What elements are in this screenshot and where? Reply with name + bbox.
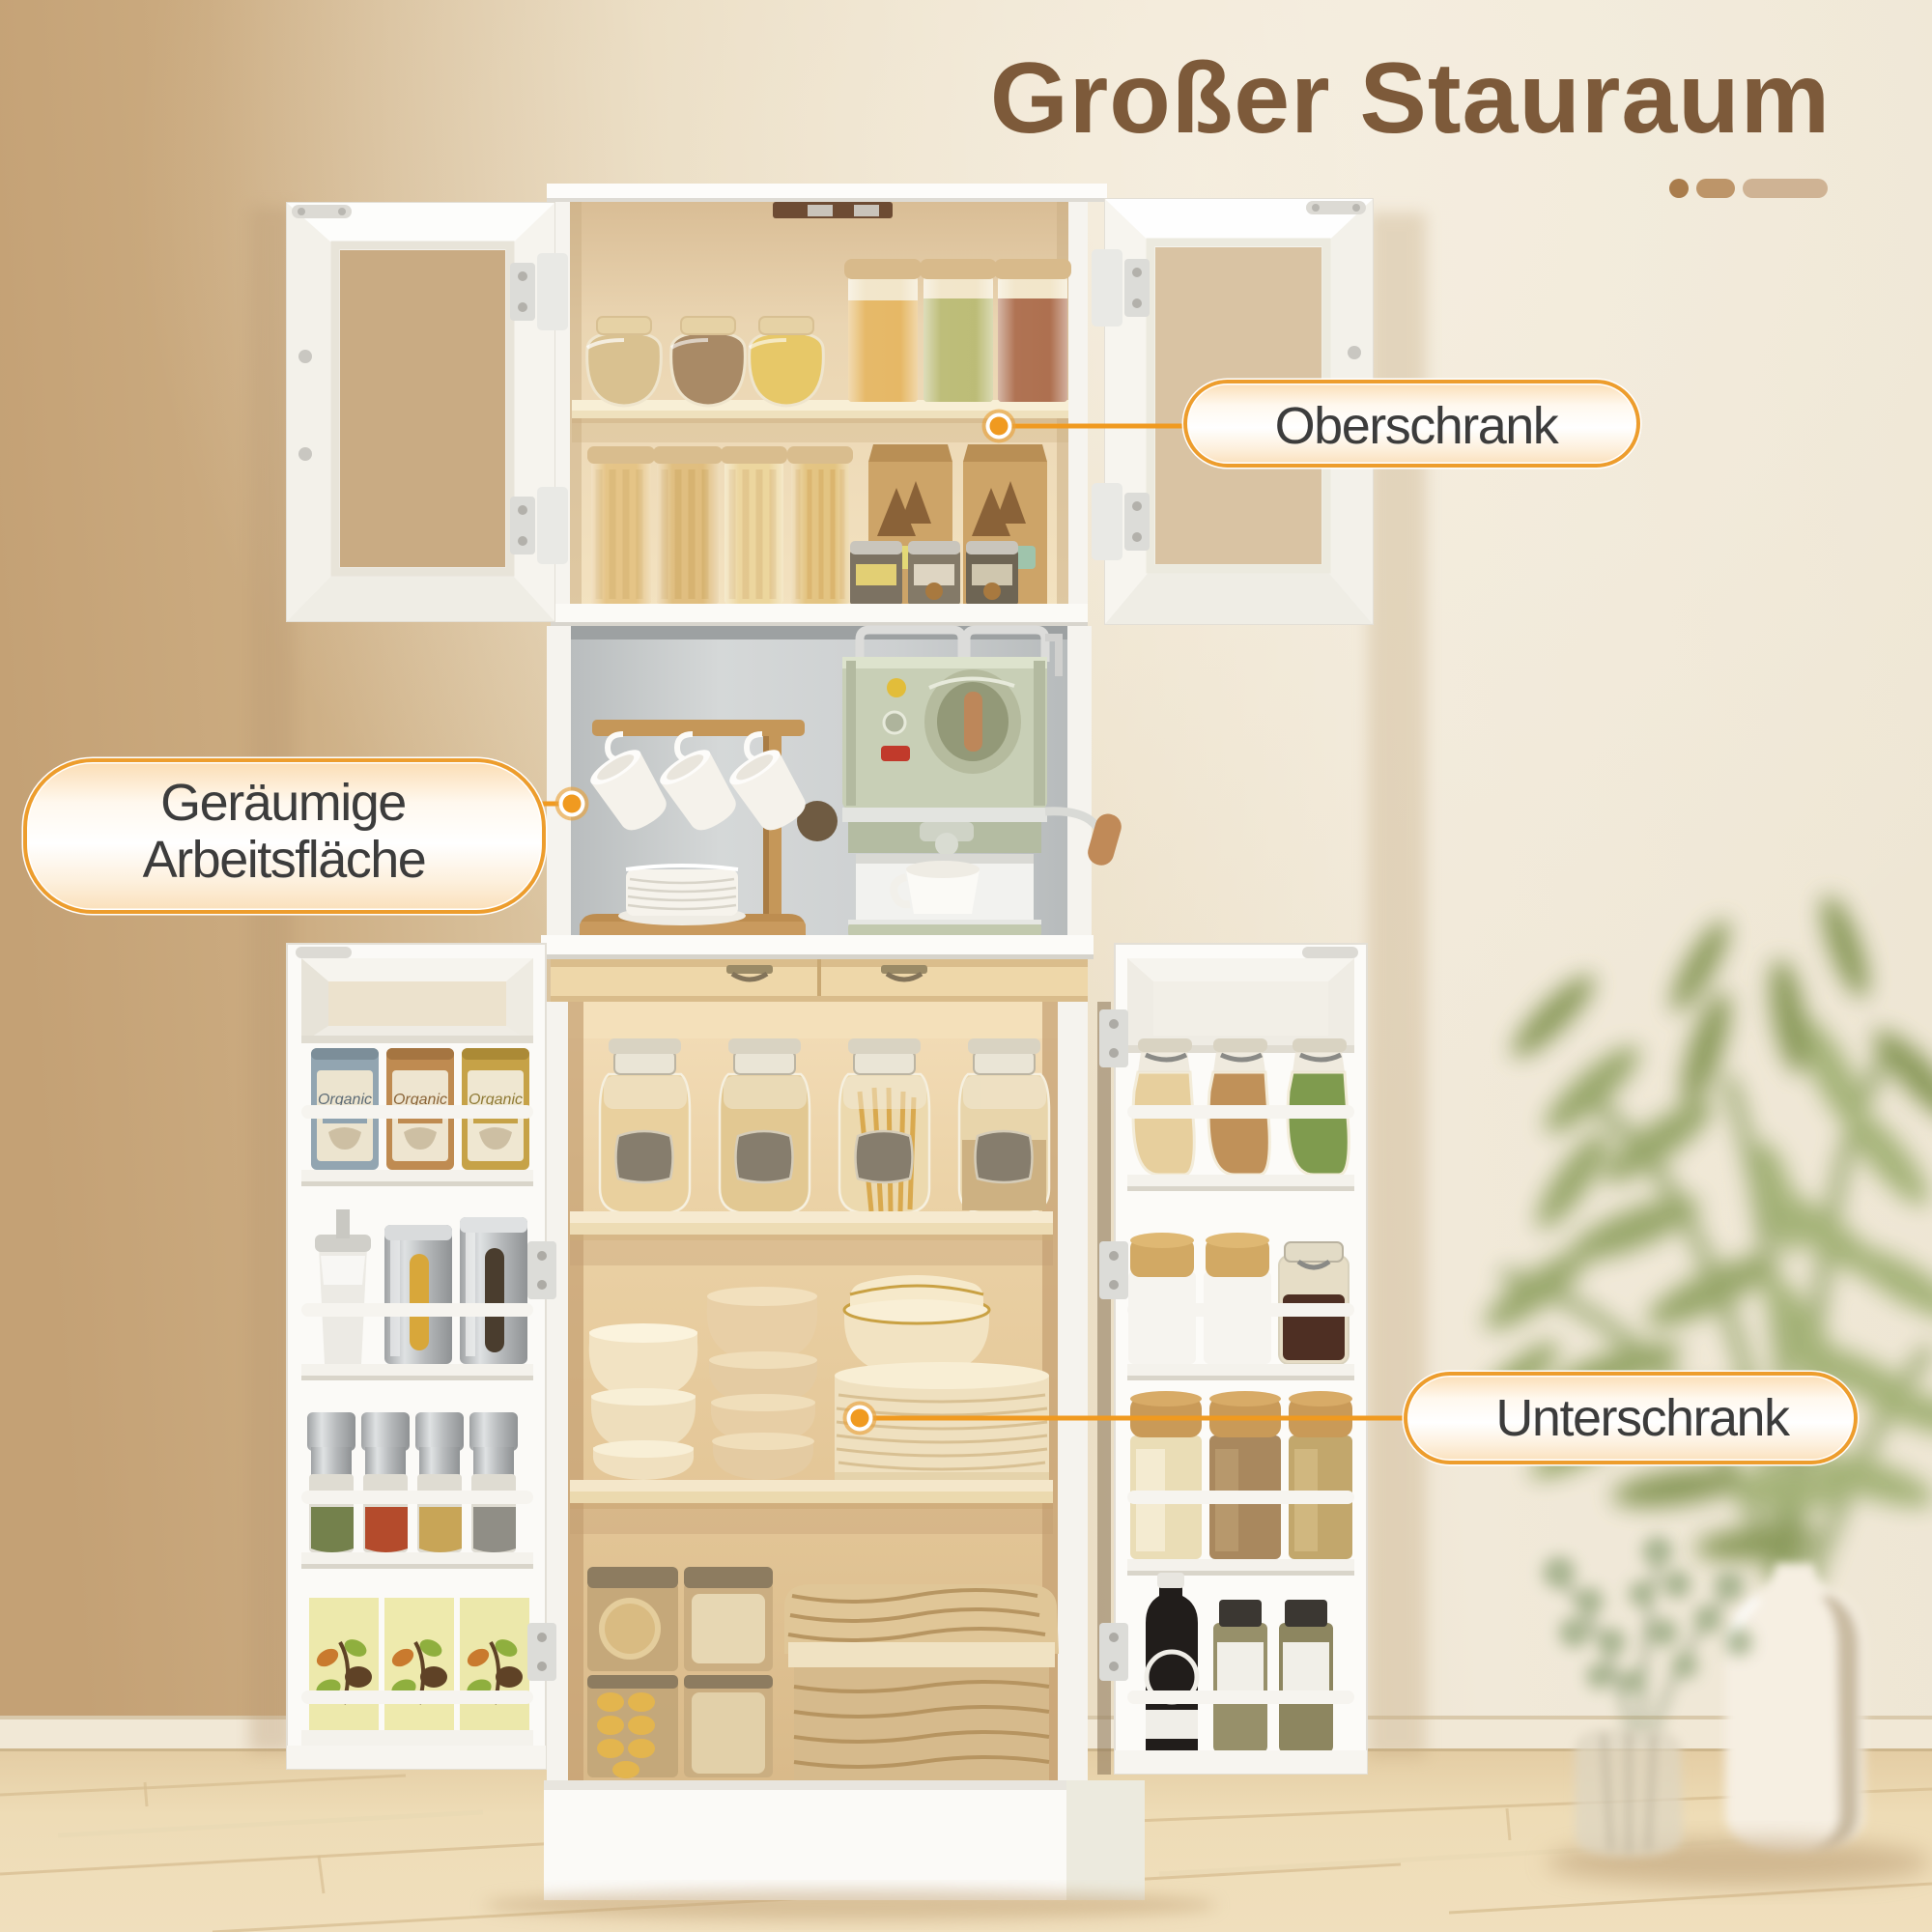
svg-text:Großer Stauraum: Großer Stauraum [990,43,1831,155]
svg-text:Unterschrank: Unterschrank [1495,1389,1791,1447]
svg-text:Oberschrank: Oberschrank [1275,397,1560,455]
svg-text:Geräumige: Geräumige [160,774,406,832]
svg-text:Arbeitsfläche: Arbeitsfläche [143,831,426,889]
